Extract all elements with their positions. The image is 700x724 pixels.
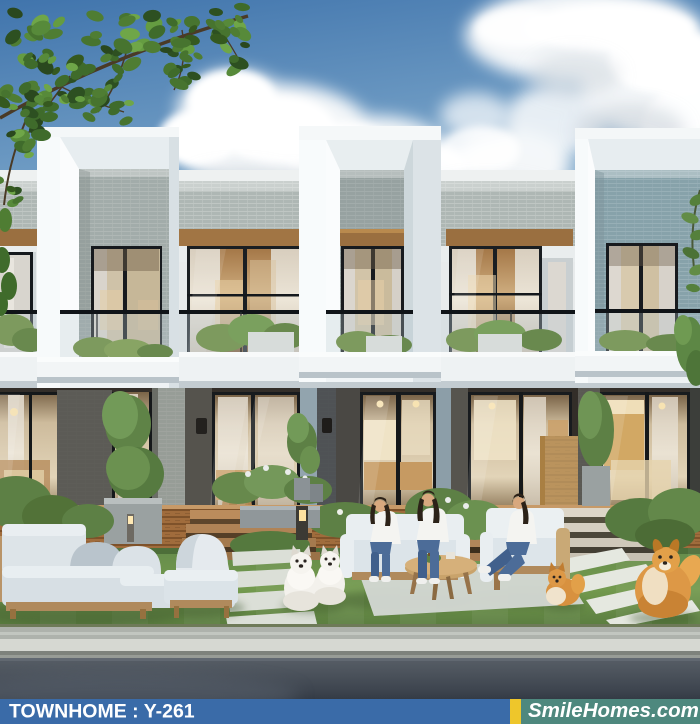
svg-text:TOWNHOME : Y-261: TOWNHOME : Y-261 — [9, 701, 195, 723]
svg-text:SmileHomes.com: SmileHomes.com — [528, 699, 699, 722]
